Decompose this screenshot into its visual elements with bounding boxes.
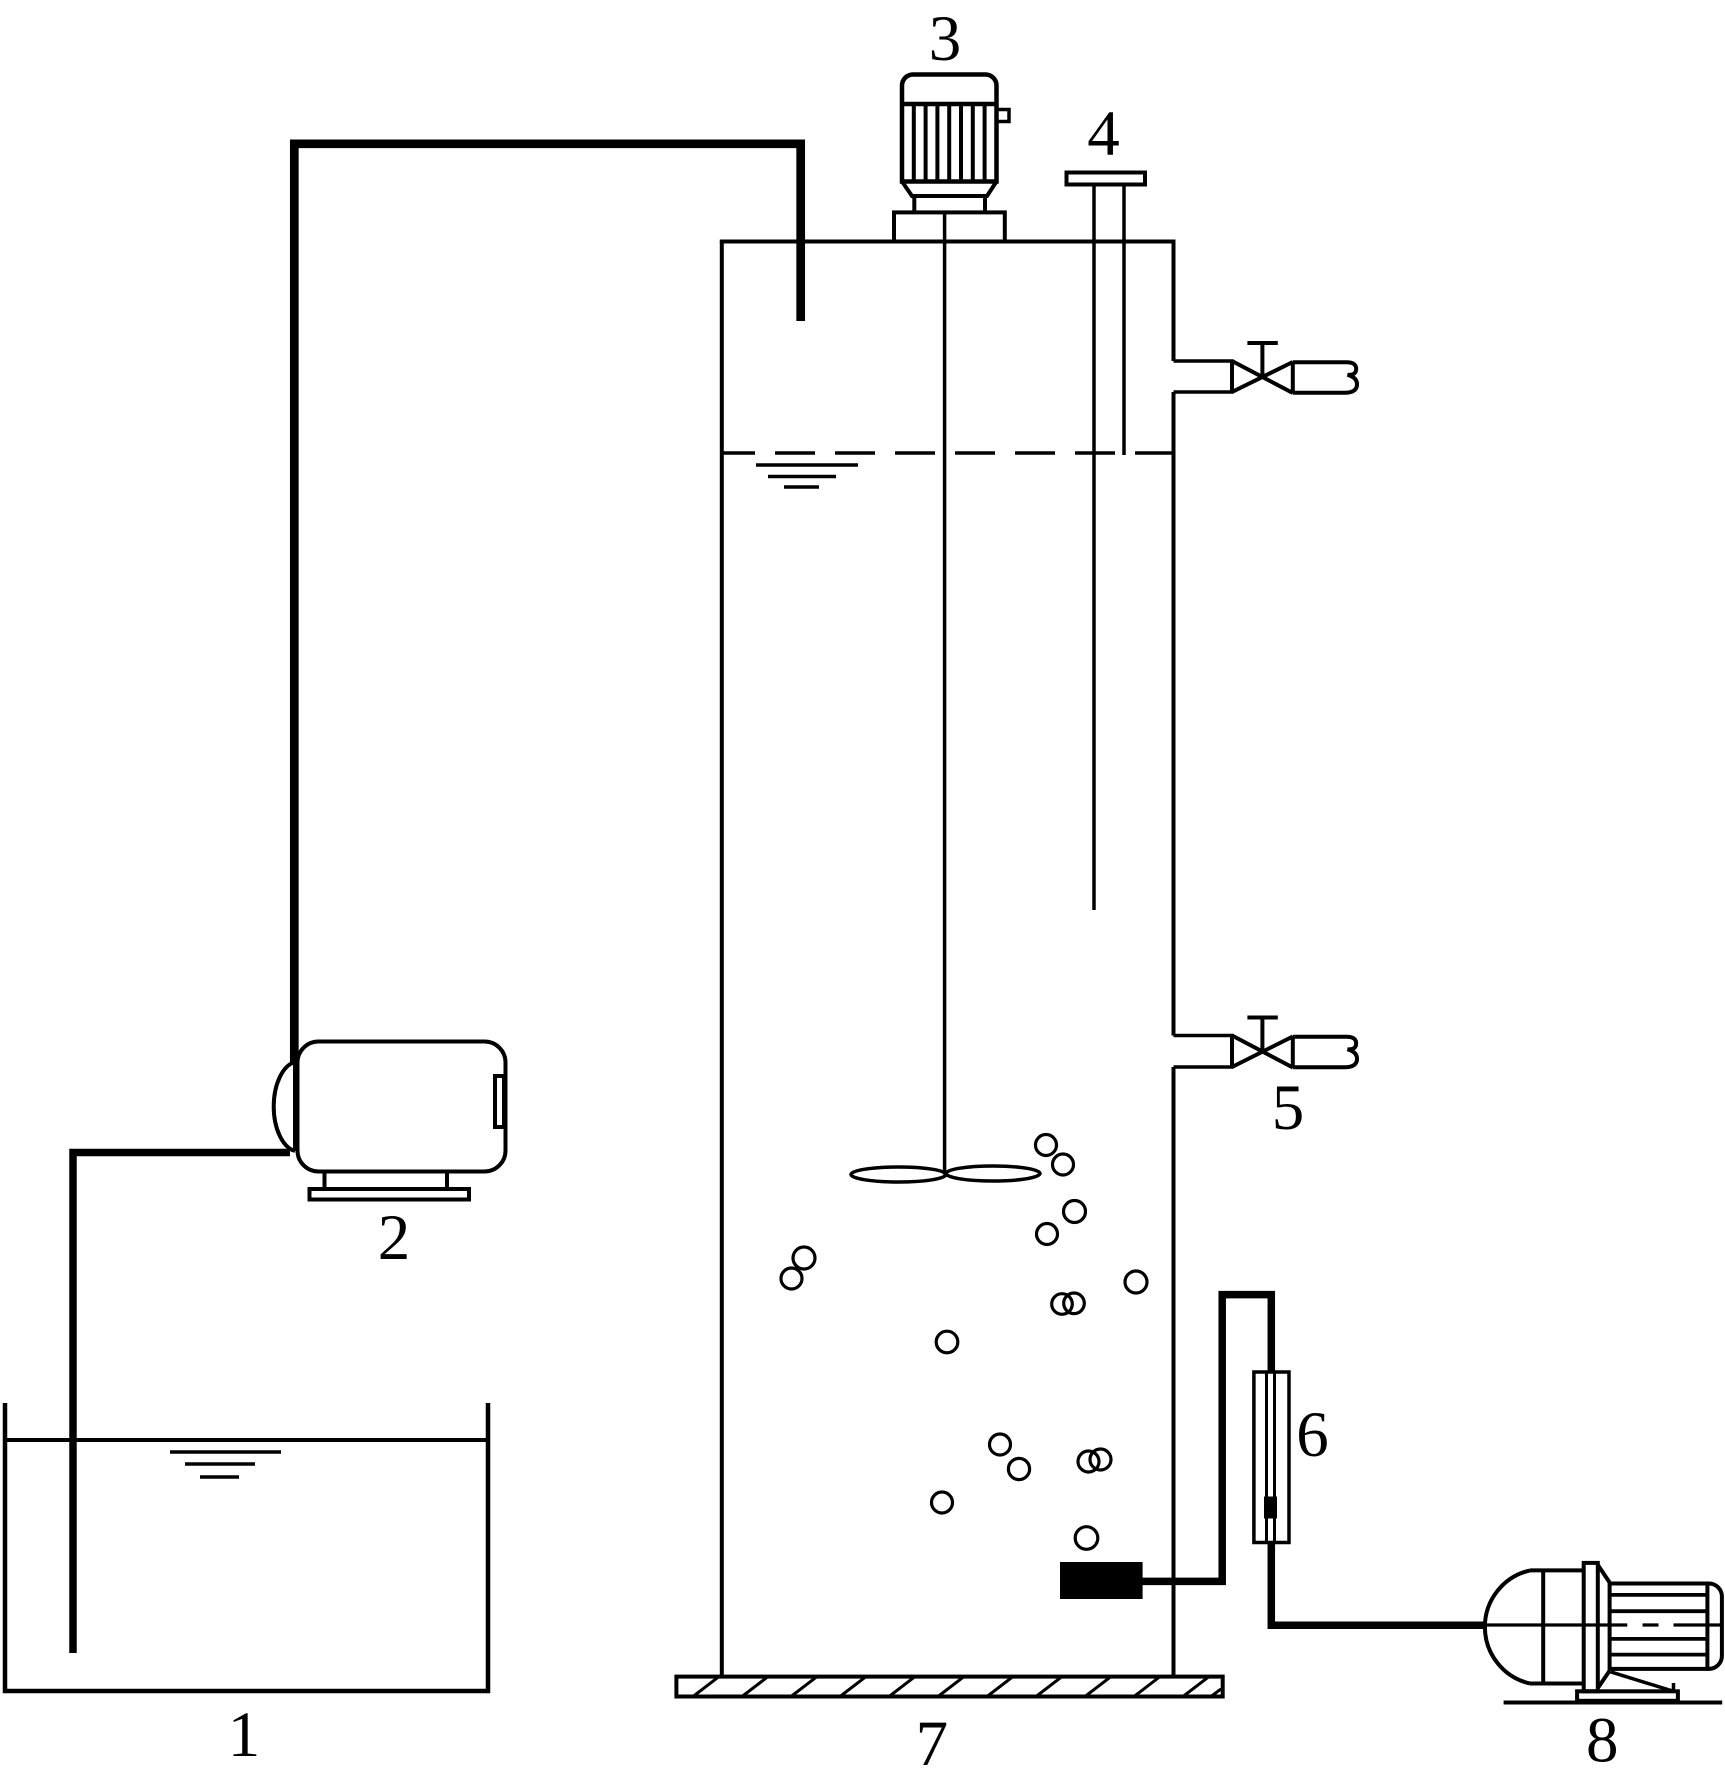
- svg-text:5: 5: [1272, 1072, 1305, 1144]
- svg-text:1: 1: [228, 1699, 261, 1771]
- svg-text:3: 3: [929, 3, 962, 75]
- svg-text:4: 4: [1087, 98, 1120, 170]
- svg-text:7: 7: [916, 1708, 949, 1779]
- svg-text:8: 8: [1586, 1705, 1619, 1777]
- svg-text:6: 6: [1296, 1399, 1329, 1471]
- svg-text:2: 2: [378, 1202, 411, 1274]
